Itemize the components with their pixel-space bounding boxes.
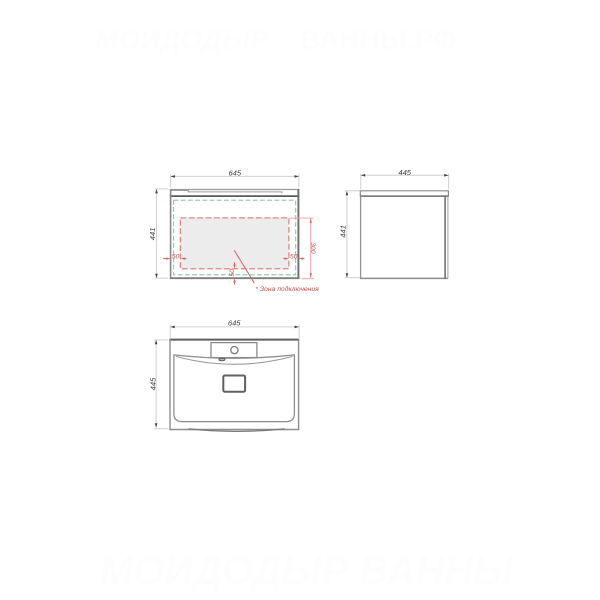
svg-text:645: 645 xyxy=(228,319,241,328)
svg-text:441: 441 xyxy=(148,228,157,241)
svg-text:50: 50 xyxy=(172,253,180,260)
svg-text:645: 645 xyxy=(228,168,241,177)
svg-text:300: 300 xyxy=(309,242,316,254)
svg-text:445: 445 xyxy=(148,377,157,390)
svg-text:50: 50 xyxy=(290,253,298,260)
svg-text:441: 441 xyxy=(338,225,347,238)
svg-text:МОИДОДЫР: МОИДОДЫР xyxy=(95,24,269,55)
svg-text:* Зона подключения: * Зона подключения xyxy=(255,285,319,293)
svg-text:445: 445 xyxy=(398,168,411,177)
svg-text:МОИДОДЫР ВАННЫ: МОИДОДЫР ВАННЫ xyxy=(100,549,514,593)
svg-text:50: 50 xyxy=(229,269,236,277)
svg-text:ВАННЫ.РФ: ВАННЫ.РФ xyxy=(300,24,457,55)
